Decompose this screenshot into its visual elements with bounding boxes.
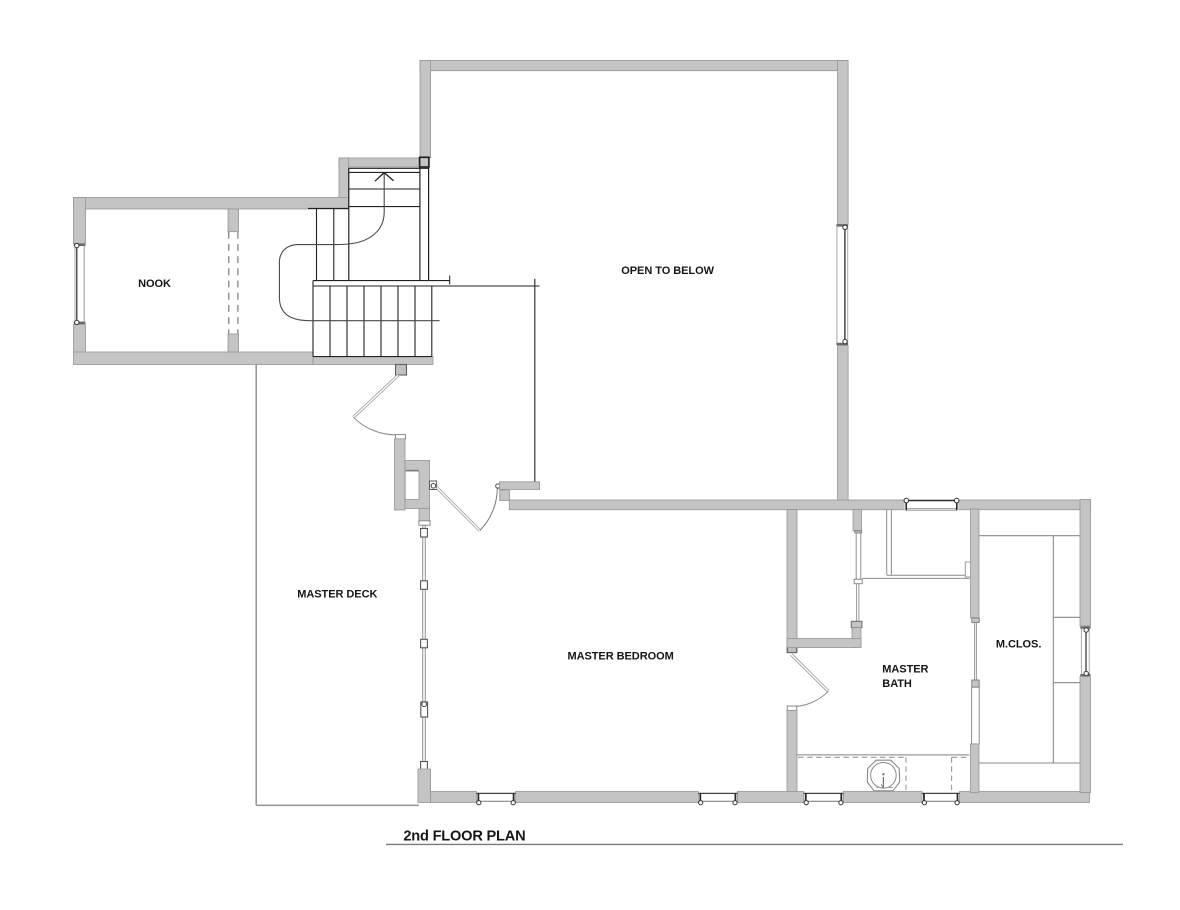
svg-text:MASTER: MASTER: [882, 664, 928, 676]
svg-text:NOOK: NOOK: [138, 278, 171, 290]
svg-text:MASTER DECK: MASTER DECK: [297, 588, 377, 600]
svg-text:BATH: BATH: [882, 678, 912, 690]
svg-text:M.CLOS.: M.CLOS.: [996, 638, 1041, 650]
svg-text:OPEN TO BELOW: OPEN TO BELOW: [621, 265, 714, 277]
svg-text:MASTER BEDROOM: MASTER BEDROOM: [567, 651, 673, 663]
svg-text:2nd FLOOR PLAN: 2nd FLOOR PLAN: [403, 828, 525, 844]
